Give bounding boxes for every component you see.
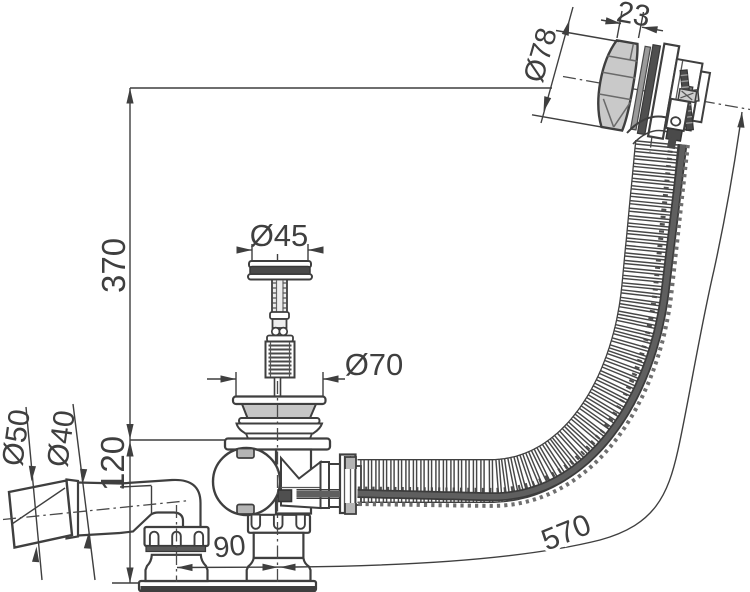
svg-text:Ø70: Ø70 <box>345 347 404 382</box>
svg-text:90: 90 <box>212 529 247 564</box>
svg-text:370: 370 <box>95 238 132 293</box>
svg-text:Ø45: Ø45 <box>250 218 309 253</box>
svg-text:23: 23 <box>614 0 653 34</box>
